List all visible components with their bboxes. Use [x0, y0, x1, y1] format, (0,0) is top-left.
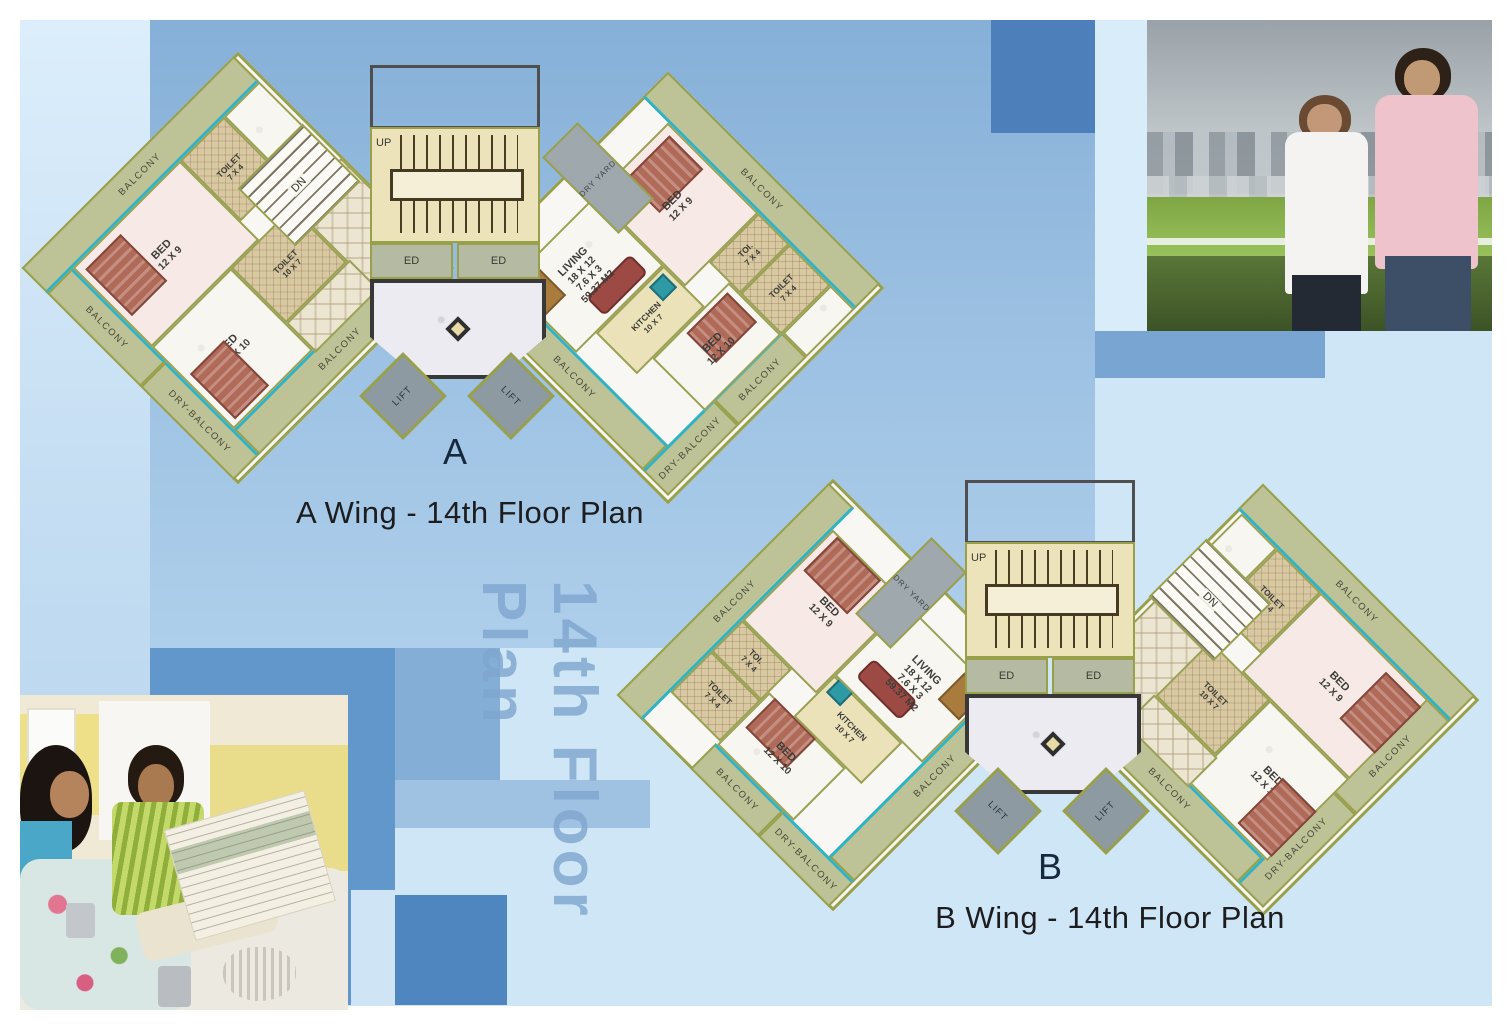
ed-room: ED — [457, 243, 540, 279]
up-label: UP — [376, 137, 391, 149]
watermark-text: 14th Floor Plan — [468, 580, 610, 1010]
lobby-floor-medallion — [1040, 731, 1065, 756]
staircase-room: UP — [965, 542, 1135, 658]
photo-steel-mug — [158, 966, 191, 1007]
lobby-floor-medallion — [445, 316, 470, 341]
photo-woman-face — [50, 771, 89, 818]
ed-room: ED — [965, 658, 1048, 694]
b-wing-caption: B Wing - 14th Floor Plan — [860, 900, 1360, 936]
open-shaft — [370, 65, 540, 129]
stair-landing — [390, 169, 524, 201]
bg-light-patch — [351, 890, 395, 1005]
bg-light-band-right — [1095, 20, 1147, 378]
staircase-room: UP — [370, 127, 540, 243]
brochure-page: 14th Floor Plan BALCONY BALCONY DRY-BALC… — [0, 0, 1512, 1026]
photo-man-shirt — [1375, 95, 1479, 269]
a-wing-floor-plan: BALCONY BALCONY DRY-BALCONY BALCONY BED1… — [50, 55, 890, 525]
photo-man-face — [1404, 60, 1440, 97]
wing-letter: B — [965, 846, 1135, 888]
kitchen-sink — [649, 273, 677, 301]
photo-man-jeans — [1385, 256, 1471, 331]
b-wing-floor-plan: BALCONY BALCONY DRY-BALCONY BALCONY BED1… — [645, 472, 1485, 942]
stair-landing — [985, 584, 1119, 616]
photo-woman-skirt — [1292, 275, 1361, 331]
photo-couple-reading — [20, 695, 348, 1010]
photo-steel-cup — [66, 903, 96, 938]
photo-woman-shirt — [1285, 132, 1368, 294]
open-shaft — [965, 480, 1135, 544]
b-wing-core: UP ED ED LIFT LIFT DRY YARD DN B — [965, 480, 1135, 892]
photo-kettle — [223, 947, 295, 1001]
ed-room: ED — [370, 243, 453, 279]
a-wing-core: UP ED ED LIFT LIFT DRY YARD DN A — [370, 65, 540, 477]
ed-room: ED — [1052, 658, 1135, 694]
bg-accent-square-topright — [991, 20, 1095, 133]
bg-band-under-photo — [1095, 331, 1325, 378]
up-label: UP — [971, 552, 986, 564]
wing-letter: A — [370, 431, 540, 473]
photo-couple-city — [1147, 20, 1492, 331]
